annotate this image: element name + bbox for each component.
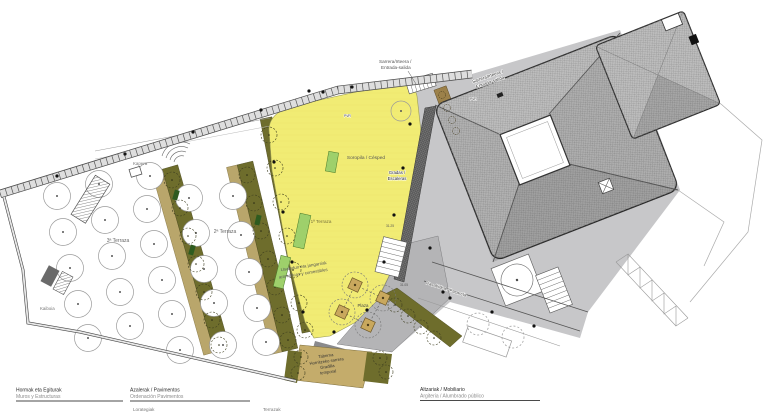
terrace2-label: 2ª Terraza xyxy=(214,229,237,235)
street-light-icon xyxy=(55,174,58,177)
street-light-icon xyxy=(307,89,310,92)
street-light-icon xyxy=(301,310,304,313)
kaiboia-label: Kaiboia xyxy=(40,306,55,311)
legend-lighting-es: Argiteria / Alumbrado público xyxy=(420,394,484,400)
terrace3-label: 3ª Terraza xyxy=(107,238,130,244)
street-light-icon xyxy=(428,246,431,249)
street-light-icon xyxy=(490,310,493,313)
legend-pavements-item2: Terrazak xyxy=(263,407,281,412)
legend-structures-es: Muros y Estructuras xyxy=(16,394,61,400)
street-light-icon xyxy=(259,108,262,111)
street-light-icon xyxy=(365,308,368,311)
pvr-label-1: PVR xyxy=(344,114,351,118)
legend-pavements-item1: Lorategiak xyxy=(133,407,155,412)
legend-pavements-eu: Azalerak / Pavimentos xyxy=(130,388,180,394)
street-light-icon xyxy=(350,85,353,88)
entrance-label-1b: Entrada-salida xyxy=(381,65,411,70)
terrace1-label: 1ª Terraza xyxy=(311,219,332,224)
street-light-icon xyxy=(532,324,535,327)
steps-label-2: Escaleras xyxy=(388,176,407,181)
lawn-label: Soropila / Césped xyxy=(347,155,385,161)
pvr-label-2: PVR xyxy=(470,97,477,101)
level-a-label: 31.25 xyxy=(386,224,394,228)
legend: Hormak eta Egiturak Muros y Estructuras … xyxy=(16,387,540,412)
street-light-icon xyxy=(272,160,275,163)
street-light-icon xyxy=(290,260,293,263)
legend-pavements-es: Ordenación Pavimentos xyxy=(130,394,184,400)
steps-label-1: Gradas / xyxy=(389,170,406,175)
street-light-icon xyxy=(281,210,284,213)
street-light-icon xyxy=(392,213,395,216)
kapera-label: Kapera xyxy=(133,161,148,166)
site-plan-drawing: Sarrera/Irteera / Entrada-salida Sarrera… xyxy=(0,0,768,417)
legend-furniture-eu: Altzariak / Mobiliario xyxy=(420,387,465,393)
legend-structures-eu: Hormak eta Egiturak xyxy=(16,388,62,394)
plaza-label: Plaza xyxy=(358,303,370,308)
street-light-icon xyxy=(191,130,194,133)
street-light-icon xyxy=(448,296,451,299)
site-plan-page: Sarrera/Irteera / Entrada-salida Sarrera… xyxy=(0,0,768,417)
level-b-label: 31.05 xyxy=(400,283,408,287)
street-light-icon xyxy=(332,330,335,333)
street-light-icon xyxy=(408,122,411,125)
street-light-icon xyxy=(321,90,324,93)
street-light-icon xyxy=(123,152,126,155)
street-light-icon xyxy=(382,260,385,263)
entrance-label-1a: Sarrera/Irteera / xyxy=(379,59,412,64)
